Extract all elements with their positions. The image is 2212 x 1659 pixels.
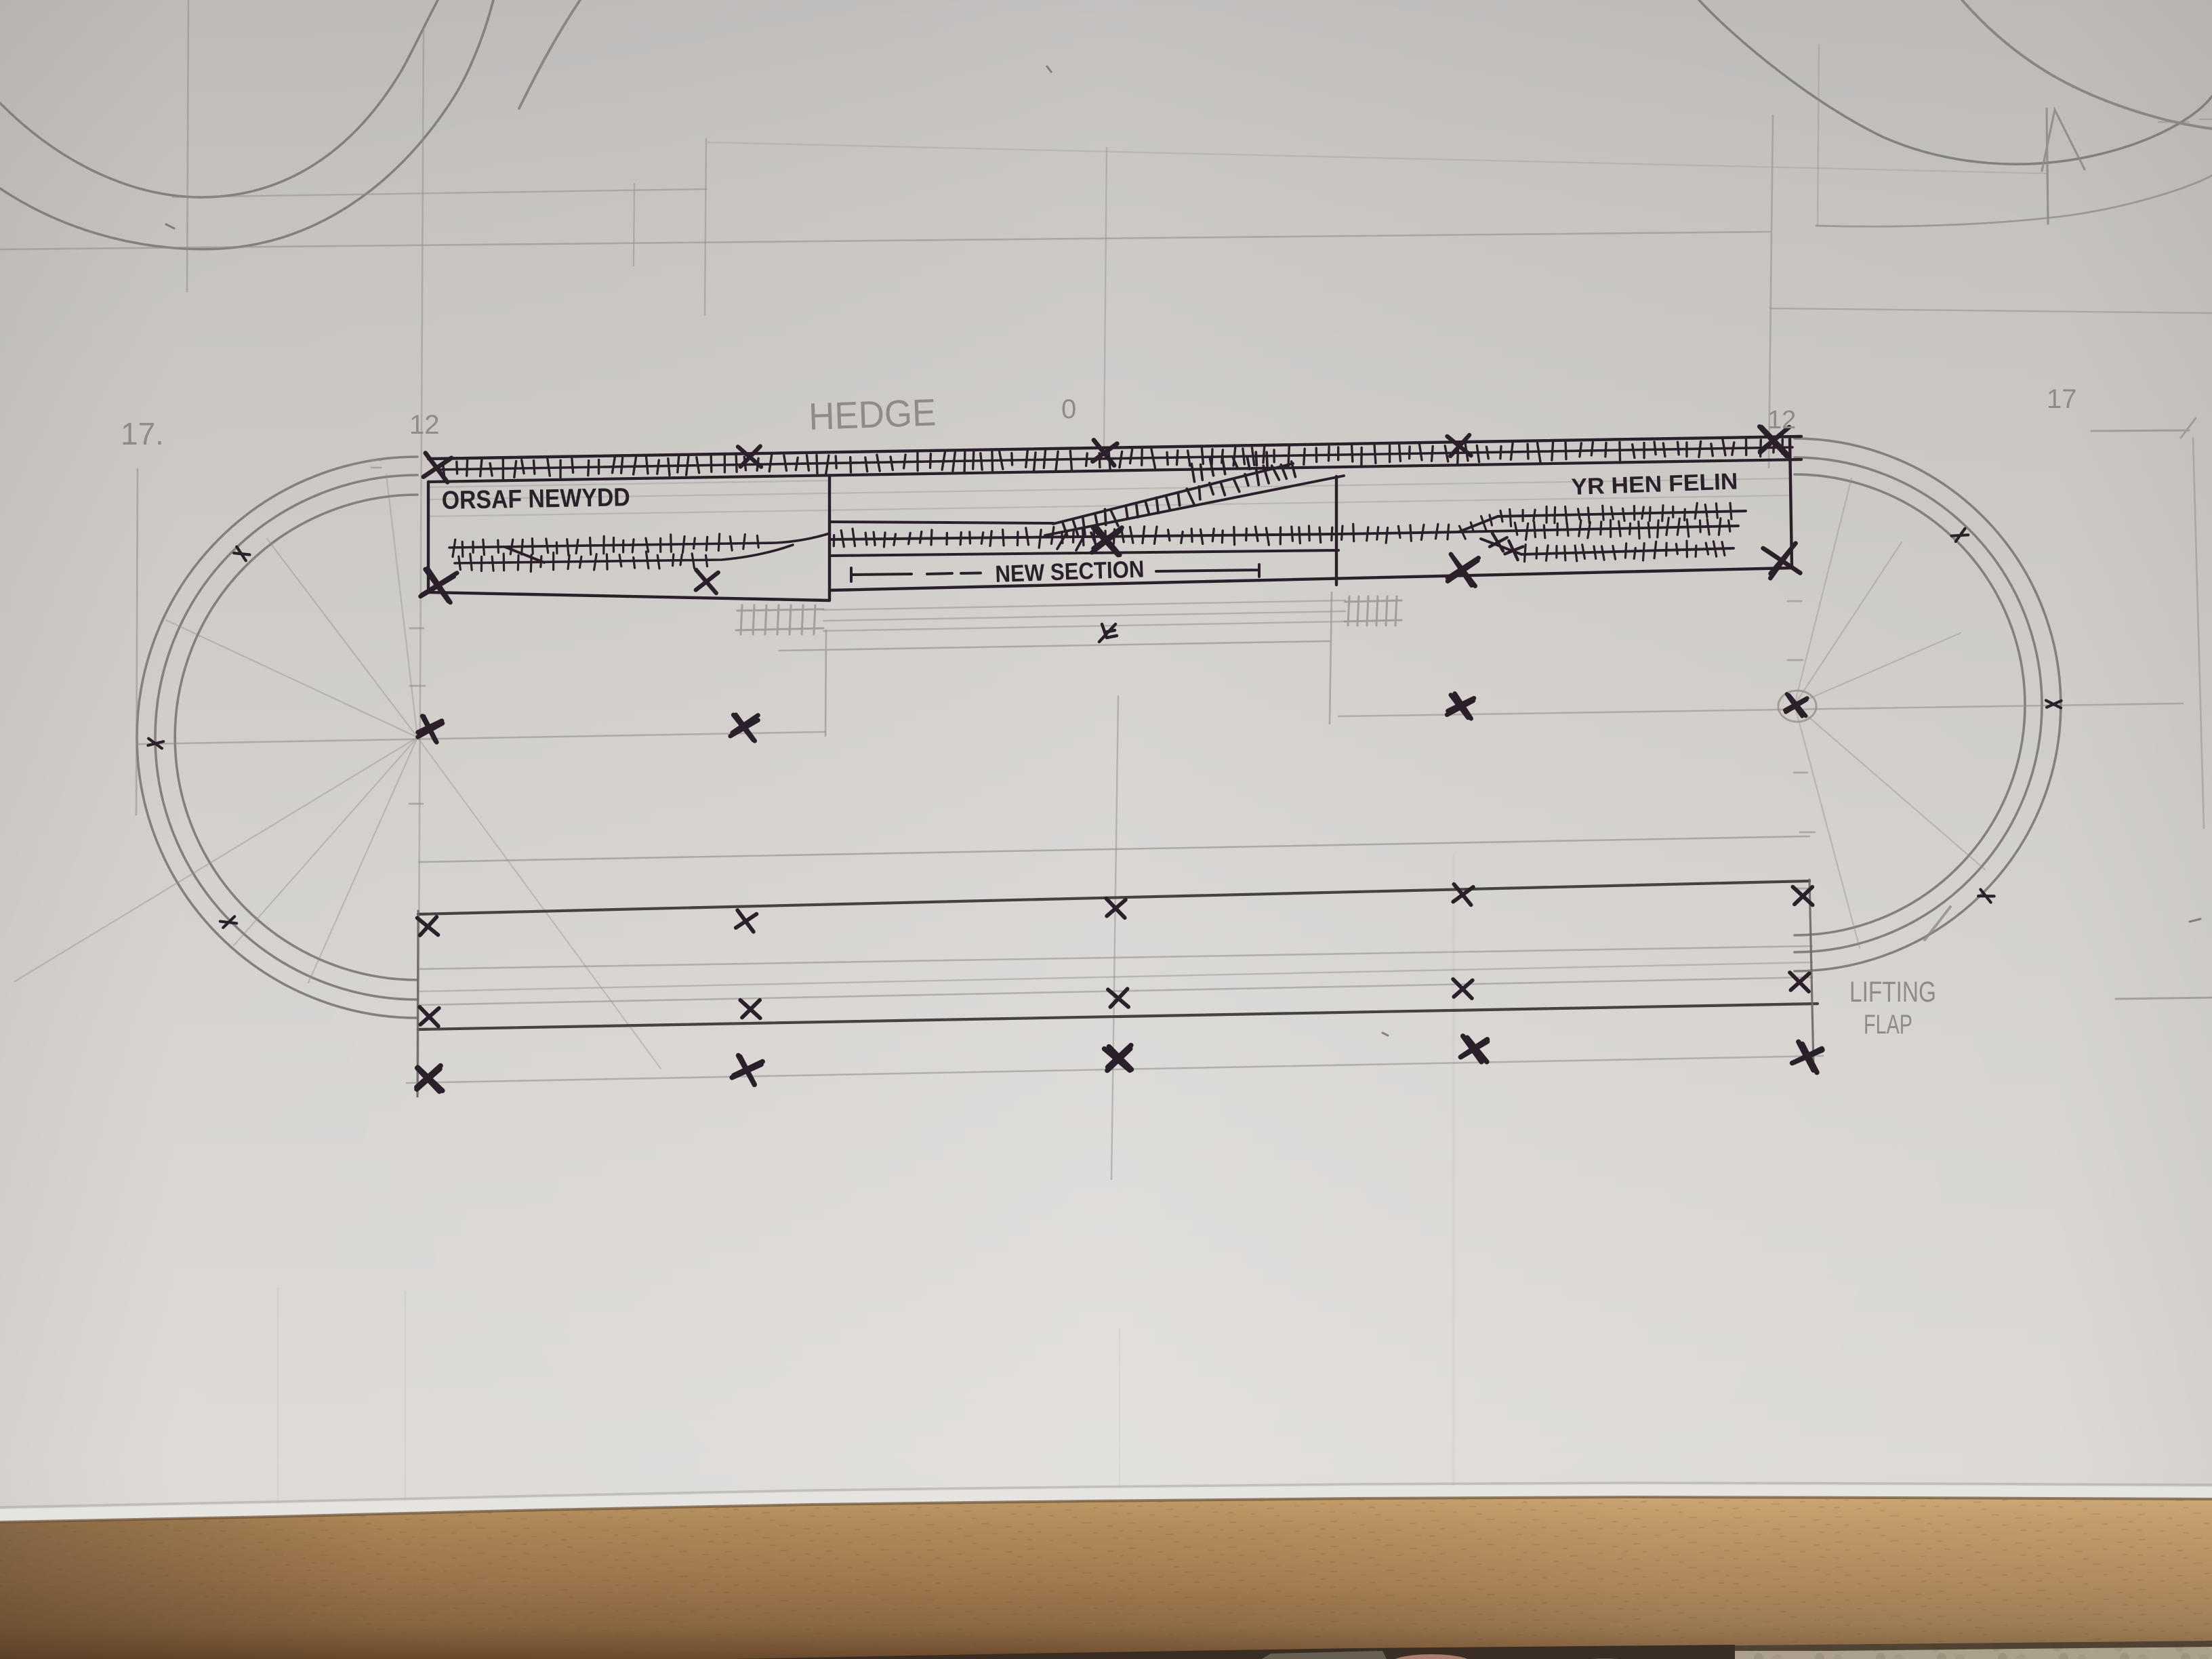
- svg-text:FLAP: FLAP: [1864, 1010, 1912, 1040]
- svg-text:LIFTING: LIFTING: [1849, 976, 1936, 1008]
- svg-text:17.: 17.: [121, 416, 164, 451]
- svg-text:HEDGE: HEDGE: [808, 390, 937, 438]
- svg-text:17: 17: [2047, 384, 2077, 414]
- svg-text:0: 0: [1061, 394, 1076, 424]
- svg-text:12: 12: [1767, 406, 1796, 434]
- svg-text:12: 12: [409, 410, 440, 440]
- svg-text:NEW SECTION: NEW SECTION: [995, 556, 1145, 588]
- svg-text:ORSAF NEWYDD: ORSAF NEWYDD: [441, 483, 630, 515]
